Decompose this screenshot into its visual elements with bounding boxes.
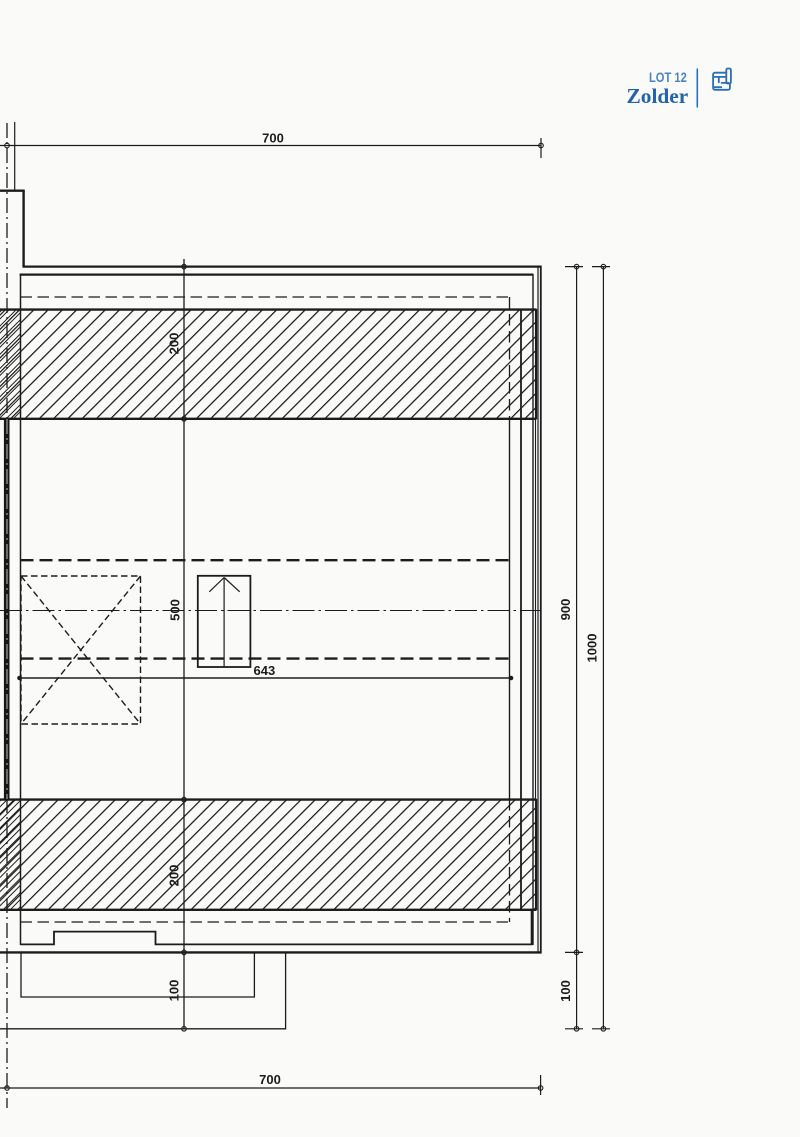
svg-text:200: 200: [167, 865, 182, 887]
svg-text:700: 700: [259, 1072, 281, 1087]
svg-text:200: 200: [167, 333, 182, 355]
svg-text:Zolder: Zolder: [627, 84, 689, 108]
svg-text:LOT 12: LOT 12: [649, 69, 687, 85]
svg-text:100: 100: [167, 980, 182, 1002]
svg-text:900: 900: [558, 599, 573, 621]
svg-text:500: 500: [168, 599, 183, 621]
svg-text:643: 643: [254, 663, 276, 678]
svg-text:100: 100: [558, 980, 573, 1002]
svg-text:700: 700: [262, 131, 284, 146]
svg-text:1000: 1000: [585, 634, 600, 663]
